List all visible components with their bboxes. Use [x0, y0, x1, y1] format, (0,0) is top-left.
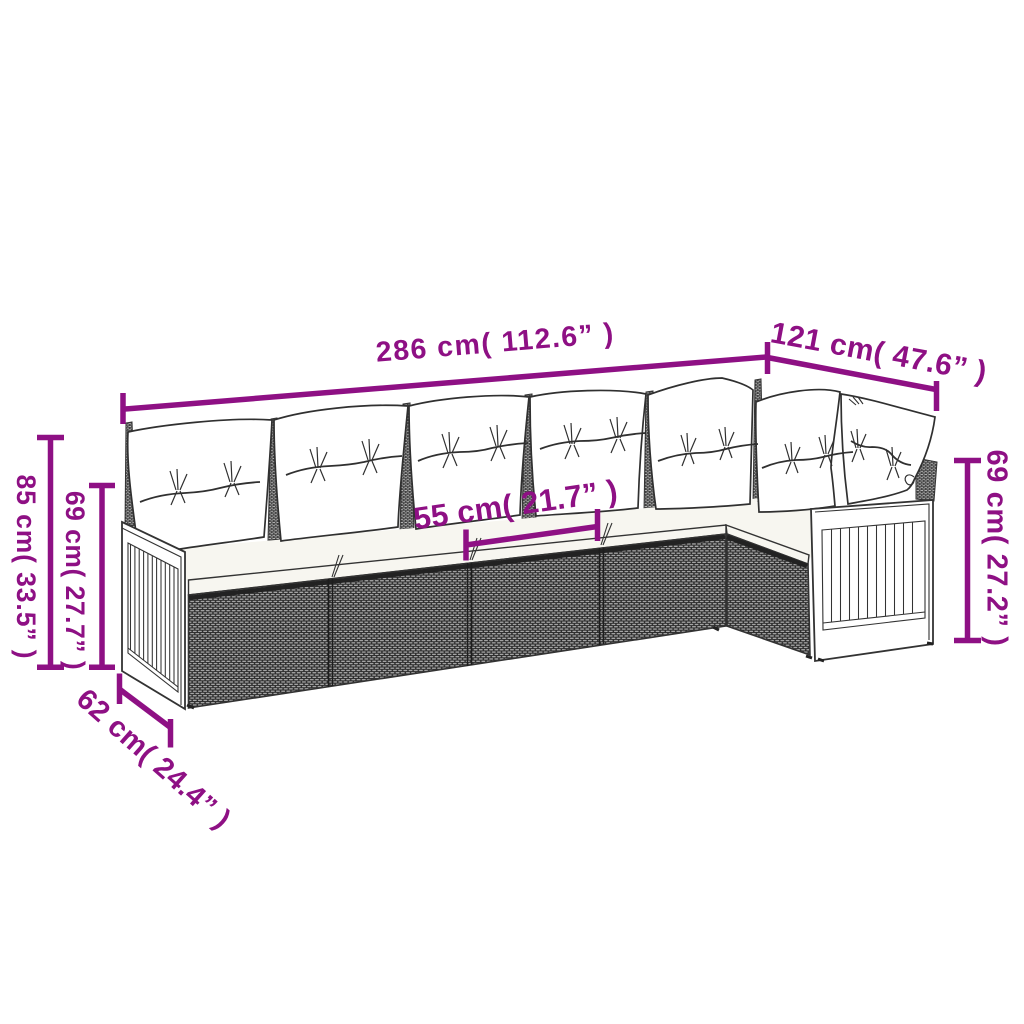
svg-text:62 cm( 24.4” ): 62 cm( 24.4” )	[70, 683, 237, 836]
svg-text:286 cm( 112.6” ): 286 cm( 112.6” )	[375, 317, 616, 369]
svg-text:69 cm( 27.7” ): 69 cm( 27.7” )	[60, 491, 90, 670]
svg-text:69 cm( 27.2” ): 69 cm( 27.2” )	[981, 450, 1013, 647]
svg-text:85 cm( 33.5” ): 85 cm( 33.5” )	[11, 475, 41, 660]
